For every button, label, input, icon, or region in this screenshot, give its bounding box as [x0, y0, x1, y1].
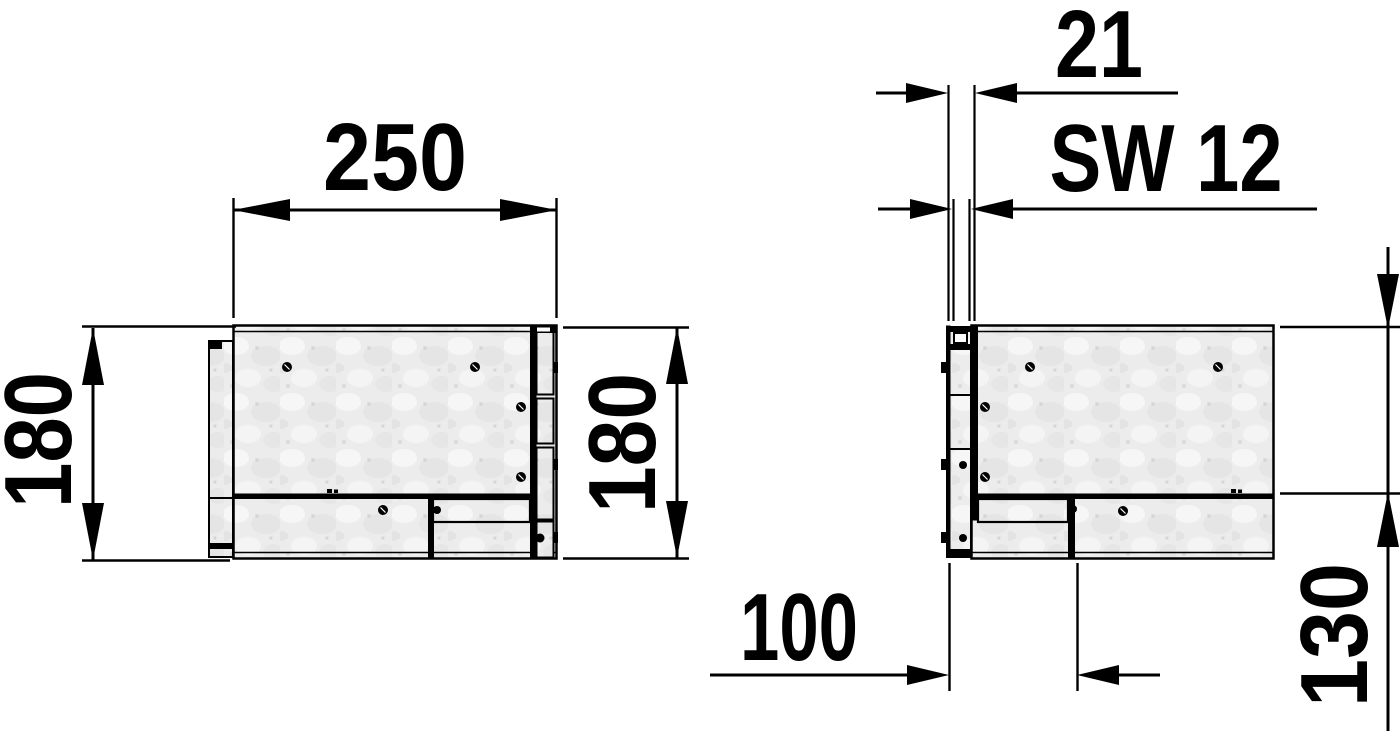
- left-view-sub-box: [433, 499, 530, 522]
- dimension-front-height-130: 130: [1280, 247, 1400, 731]
- right-view-wall-plate: [948, 327, 971, 557]
- right-view-edge-nub: [941, 459, 946, 470]
- left-view-edge-nub: [553, 459, 558, 470]
- dimension-label-180-left: 180: [0, 372, 92, 508]
- screw-dot: [1069, 505, 1077, 513]
- dimension-label-250: 250: [323, 104, 467, 211]
- arrowhead-left: [233, 199, 290, 221]
- left-view-right-strip-block: [537, 399, 554, 444]
- dimension-label-21: 21: [1055, 0, 1143, 98]
- left-view-divider-tick: [327, 489, 332, 493]
- dimension-label-180-right: 180: [569, 373, 676, 513]
- right-view-bottom-bar: [1068, 494, 1075, 559]
- dimension-wrench-sw12: SW 12: [878, 85, 1317, 321]
- screw-dot: [959, 461, 967, 469]
- screw-dot: [959, 534, 967, 542]
- right-view-edge-nub: [941, 362, 946, 373]
- dimension-width-250: 250: [233, 104, 557, 318]
- arrowhead-up: [82, 328, 104, 385]
- technical-drawing-page: 250 180 180: [0, 0, 1400, 736]
- arrowhead-right: [907, 665, 949, 685]
- left-view-strip-top-cap: [208, 341, 222, 349]
- right-view-plate-notch: [954, 333, 967, 343]
- right-view-body: [972, 326, 1274, 559]
- right-view: [941, 326, 1274, 559]
- left-view-bottom-bar: [428, 494, 434, 559]
- right-view-plate-bracket: [950, 344, 971, 350]
- arrowhead-left: [971, 199, 1013, 219]
- arrowhead-down: [82, 503, 104, 560]
- right-view-plate-edge: [946, 326, 951, 558]
- arrowhead-up: [666, 327, 688, 384]
- right-view-left-wall-bar: [971, 326, 978, 521]
- right-view-divider-tick: [1231, 489, 1236, 493]
- dimension-height-180-left: 180: [0, 327, 236, 561]
- left-view-top-right-notch: [537, 328, 550, 332]
- screw-dot: [536, 534, 545, 543]
- right-view-plate-bracket: [950, 326, 971, 332]
- arrowhead-down: [1377, 274, 1399, 329]
- left-view-edge-nub: [553, 362, 558, 373]
- left-view-right-strip-block: [537, 331, 554, 395]
- right-view-edge-nub: [941, 532, 946, 543]
- screw-dot: [433, 506, 441, 514]
- left-view-divider-tick: [334, 490, 338, 494]
- left-view-body: [234, 326, 557, 559]
- arrowhead-down: [666, 501, 688, 558]
- arrowhead-right: [910, 199, 952, 219]
- dimension-height-180-right: 180: [563, 327, 689, 559]
- left-view-edge-nub: [553, 532, 558, 543]
- dimension-label-100: 100: [740, 574, 858, 681]
- right-view-sub-box: [978, 499, 1068, 522]
- dimension-plate-offset-21: 21: [876, 0, 1178, 103]
- left-view-strip-bottom-cap: [209, 543, 233, 549]
- left-view: [208, 326, 558, 559]
- arrowhead-left: [1077, 665, 1119, 685]
- arrowhead-right: [906, 83, 948, 103]
- dimension-label-sw12: SW 12: [1050, 105, 1283, 212]
- arrowhead-right: [500, 199, 557, 221]
- arrowhead-up: [1377, 492, 1399, 547]
- dimension-depth-100: 100: [710, 563, 1160, 691]
- technical-drawing: 250 180 180: [0, 0, 1400, 736]
- left-view-right-strip-block: [537, 448, 554, 520]
- right-view-divider-tick: [1238, 490, 1242, 494]
- arrowhead-left: [975, 83, 1017, 103]
- left-view-wall-strip: [209, 341, 233, 557]
- dimension-label-130: 130: [1281, 563, 1388, 707]
